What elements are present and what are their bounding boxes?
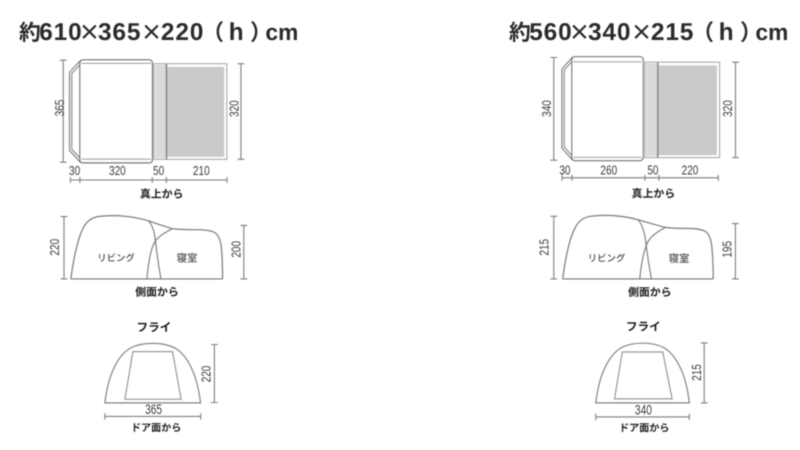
svg-text:215: 215 [537,239,552,256]
svg-text:195: 195 [720,241,735,258]
svg-text:260: 260 [600,163,617,178]
svg-text:50: 50 [153,164,165,179]
svg-text:320: 320 [227,100,242,117]
svg-text:365: 365 [145,402,162,418]
svg-text:200: 200 [229,241,244,258]
svg-text:30: 30 [69,164,81,179]
svg-text:365: 365 [53,99,68,116]
svg-text:50: 50 [647,163,659,178]
svg-text:30: 30 [559,163,571,178]
svg-text:215: 215 [690,364,705,381]
svg-text:340: 340 [540,100,555,117]
svg-text:340: 340 [635,402,652,418]
svg-text:320: 320 [721,100,736,117]
svg-text:210: 210 [193,164,210,179]
svg-text:220: 220 [199,365,214,382]
svg-text:320: 320 [109,164,126,179]
svg-text:220: 220 [682,163,699,178]
svg-text:220: 220 [48,238,63,255]
